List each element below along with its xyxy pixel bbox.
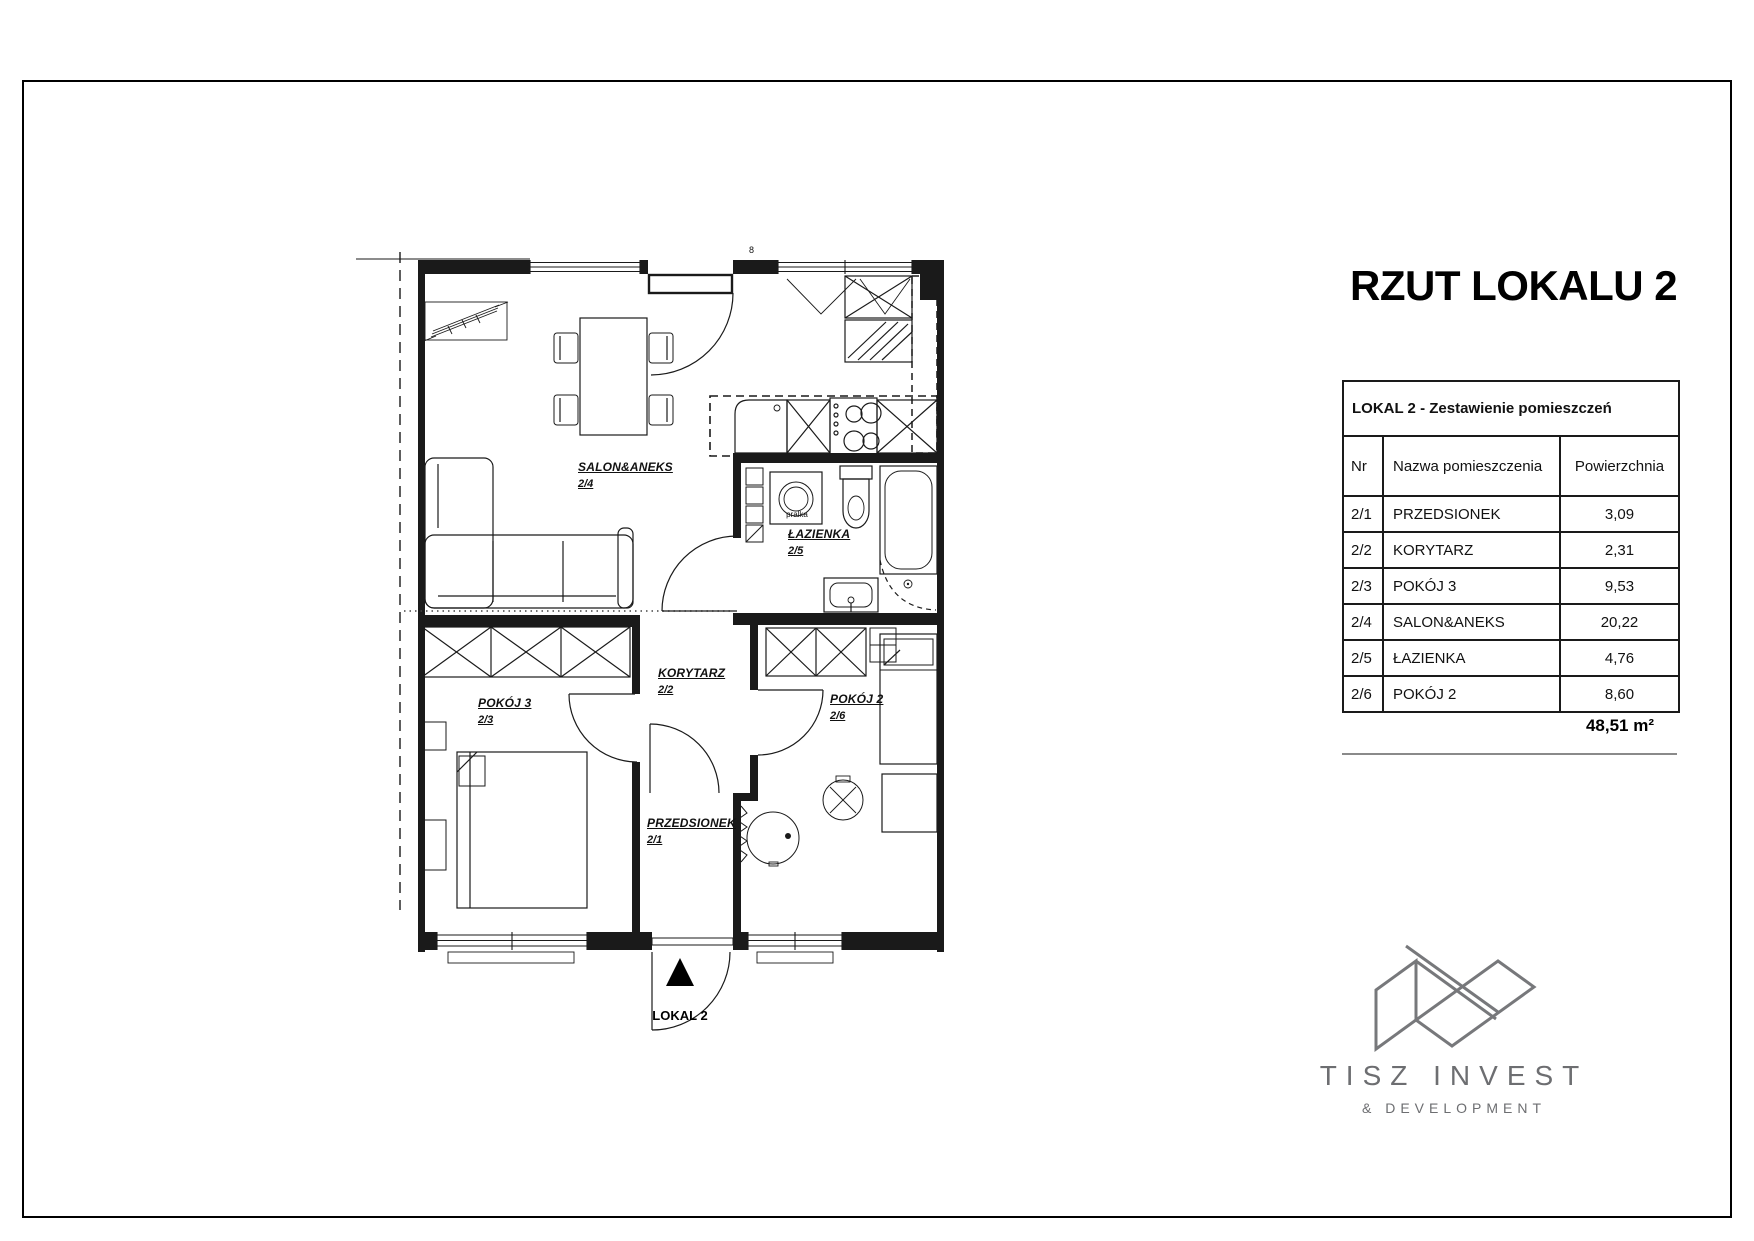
col-header-name: Nazwa pomieszczenia bbox=[1384, 437, 1561, 495]
building-outline-dashed bbox=[356, 252, 530, 910]
table-row: 2/4 SALON&ANEKS 20,22 bbox=[1344, 605, 1678, 641]
room-label-lazienka: ŁAZIENKA bbox=[788, 527, 850, 541]
total-area: 48,51 m² bbox=[1342, 716, 1654, 736]
wardrobe-pokoj3 bbox=[422, 627, 630, 677]
room-number-korytarz: 2/2 bbox=[658, 684, 673, 696]
room-label-pokoj3: POKÓJ 3 bbox=[478, 696, 531, 710]
room-number-przedsionek: 2/1 bbox=[647, 834, 662, 846]
washer-label: pralka bbox=[776, 510, 818, 519]
col-header-nr: Nr bbox=[1344, 437, 1384, 495]
room-number-pokoj2: 2/6 bbox=[830, 710, 845, 722]
wardrobe-pokoj2 bbox=[766, 628, 896, 676]
room-label-salon: SALON&ANEKS bbox=[578, 460, 673, 474]
company-logo-icon bbox=[1370, 936, 1540, 1054]
room-label-przedsionek: PRZEDSIONEK bbox=[647, 816, 736, 830]
floor-plan bbox=[340, 220, 960, 1050]
radiator-icon bbox=[424, 302, 508, 341]
page: SALON&ANEKS 2/4 ŁAZIENKA 2/5 KORYTARZ 2/… bbox=[0, 0, 1754, 1241]
col-header-area: Powierzchnia bbox=[1561, 437, 1678, 495]
toilet-icon bbox=[840, 466, 872, 528]
room-area-table: LOKAL 2 - Zestawienie pomieszczeń Nr Naz… bbox=[1342, 380, 1680, 713]
walls bbox=[418, 260, 944, 952]
entrance-label: LOKAL 2 bbox=[636, 1008, 724, 1023]
room-number-lazienka: 2/5 bbox=[788, 545, 803, 557]
room-label-korytarz: KORYTARZ bbox=[658, 666, 725, 680]
dining-table bbox=[554, 318, 673, 435]
room-number-pokoj3: 2/3 bbox=[478, 714, 493, 726]
table-row: 2/3 POKÓJ 3 9,53 bbox=[1344, 569, 1678, 605]
bed-pokoj2 bbox=[880, 634, 937, 764]
bathtub-icon bbox=[880, 466, 937, 610]
company-tagline: & DEVELOPMENT bbox=[1294, 1100, 1614, 1116]
desk-and-chair bbox=[823, 774, 937, 832]
bathroom-shelf bbox=[746, 468, 763, 542]
bed-pokoj3 bbox=[424, 722, 587, 908]
company-name: TISZ INVEST bbox=[1294, 1060, 1614, 1092]
table-row: 2/1 PRZEDSIONEK 3,09 bbox=[1344, 497, 1678, 533]
table-title: LOKAL 2 - Zestawienie pomieszczeń bbox=[1344, 382, 1678, 437]
coat-rack-icon bbox=[737, 806, 799, 866]
dimension-label: 8 bbox=[749, 245, 754, 255]
table-header-row: Nr Nazwa pomieszczenia Powierzchnia bbox=[1344, 437, 1678, 497]
page-title: RZUT LOKALU 2 bbox=[1350, 262, 1677, 310]
kitchen-counter bbox=[710, 276, 937, 456]
sofa bbox=[425, 458, 633, 608]
room-number-salon: 2/4 bbox=[578, 478, 593, 490]
bathroom-sink-icon bbox=[824, 578, 878, 612]
entrance-arrow-icon bbox=[666, 958, 694, 986]
room-label-pokoj2: POKÓJ 2 bbox=[830, 692, 883, 706]
stove-icon bbox=[830, 398, 881, 455]
table-row: 2/2 KORYTARZ 2,31 bbox=[1344, 533, 1678, 569]
table-row: 2/5 ŁAZIENKA 4,76 bbox=[1344, 641, 1678, 677]
table-row: 2/6 POKÓJ 2 8,60 bbox=[1344, 677, 1678, 711]
table-baseline bbox=[1342, 753, 1677, 755]
